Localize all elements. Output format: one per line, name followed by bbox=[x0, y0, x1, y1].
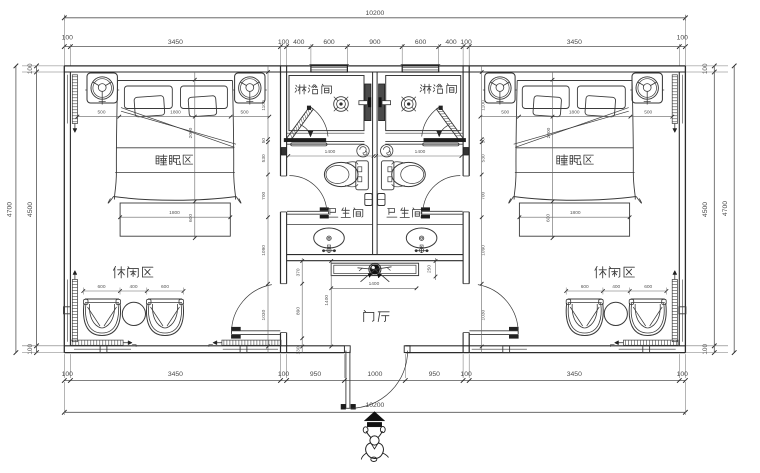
svg-text:4500: 4500 bbox=[27, 202, 34, 217]
svg-text:1030: 1030 bbox=[481, 309, 487, 320]
svg-text:600: 600 bbox=[97, 284, 105, 290]
svg-text:130: 130 bbox=[295, 346, 301, 354]
svg-text:4500: 4500 bbox=[702, 202, 709, 217]
svg-text:600: 600 bbox=[644, 284, 652, 290]
svg-text:950: 950 bbox=[310, 371, 322, 378]
svg-text:1400: 1400 bbox=[369, 281, 380, 287]
svg-text:100: 100 bbox=[460, 371, 472, 378]
svg-text:500: 500 bbox=[240, 110, 248, 116]
svg-text:600: 600 bbox=[415, 39, 427, 46]
svg-text:50: 50 bbox=[481, 138, 487, 144]
svg-text:4700: 4700 bbox=[7, 202, 14, 217]
svg-text:1800: 1800 bbox=[570, 210, 581, 216]
svg-text:100: 100 bbox=[27, 63, 34, 74]
svg-text:370: 370 bbox=[295, 268, 301, 276]
svg-text:1800: 1800 bbox=[569, 110, 580, 116]
svg-text:1090: 1090 bbox=[261, 245, 267, 256]
svg-text:100: 100 bbox=[460, 39, 472, 46]
svg-text:600: 600 bbox=[161, 284, 169, 290]
svg-text:2000: 2000 bbox=[546, 127, 552, 138]
svg-text:1100: 1100 bbox=[261, 100, 267, 111]
svg-text:600: 600 bbox=[546, 214, 552, 222]
svg-text:50: 50 bbox=[261, 138, 267, 144]
svg-text:100: 100 bbox=[278, 39, 290, 46]
svg-text:600: 600 bbox=[323, 39, 335, 46]
svg-text:10200: 10200 bbox=[365, 10, 384, 17]
svg-text:890: 890 bbox=[295, 307, 301, 315]
svg-text:600: 600 bbox=[581, 284, 589, 290]
svg-text:1400: 1400 bbox=[324, 295, 330, 306]
svg-text:400: 400 bbox=[293, 39, 305, 46]
svg-text:400: 400 bbox=[129, 284, 137, 290]
svg-text:2000: 2000 bbox=[188, 127, 194, 138]
svg-text:100: 100 bbox=[702, 344, 709, 355]
svg-text:600: 600 bbox=[188, 214, 194, 222]
svg-text:530: 530 bbox=[261, 154, 267, 162]
svg-text:100: 100 bbox=[677, 35, 689, 42]
svg-text:1030: 1030 bbox=[261, 309, 267, 320]
svg-text:1000: 1000 bbox=[367, 371, 382, 378]
svg-text:1100: 1100 bbox=[481, 100, 487, 111]
svg-text:3450: 3450 bbox=[168, 371, 183, 378]
svg-text:100: 100 bbox=[62, 35, 74, 42]
svg-text:500: 500 bbox=[97, 110, 105, 116]
svg-text:100: 100 bbox=[27, 344, 34, 355]
svg-text:3450: 3450 bbox=[567, 371, 582, 378]
svg-text:250: 250 bbox=[427, 265, 433, 273]
svg-text:400: 400 bbox=[612, 284, 620, 290]
svg-text:1400: 1400 bbox=[325, 149, 336, 155]
svg-text:500: 500 bbox=[644, 110, 652, 116]
svg-text:1800: 1800 bbox=[170, 110, 181, 116]
svg-text:3450: 3450 bbox=[567, 39, 582, 46]
svg-text:100: 100 bbox=[62, 371, 74, 378]
svg-text:100: 100 bbox=[702, 63, 709, 74]
svg-text:900: 900 bbox=[369, 39, 381, 46]
svg-text:1090: 1090 bbox=[481, 245, 487, 256]
svg-text:1800: 1800 bbox=[169, 210, 180, 216]
svg-text:100: 100 bbox=[677, 371, 689, 378]
svg-text:100: 100 bbox=[278, 371, 290, 378]
svg-text:530: 530 bbox=[481, 154, 487, 162]
svg-text:1400: 1400 bbox=[415, 149, 426, 155]
svg-text:4700: 4700 bbox=[722, 201, 729, 216]
svg-text:700: 700 bbox=[261, 191, 267, 199]
svg-text:400: 400 bbox=[445, 39, 457, 46]
svg-text:3450: 3450 bbox=[168, 39, 183, 46]
svg-text:700: 700 bbox=[481, 191, 487, 199]
svg-text:950: 950 bbox=[429, 371, 441, 378]
svg-text:500: 500 bbox=[501, 110, 509, 116]
